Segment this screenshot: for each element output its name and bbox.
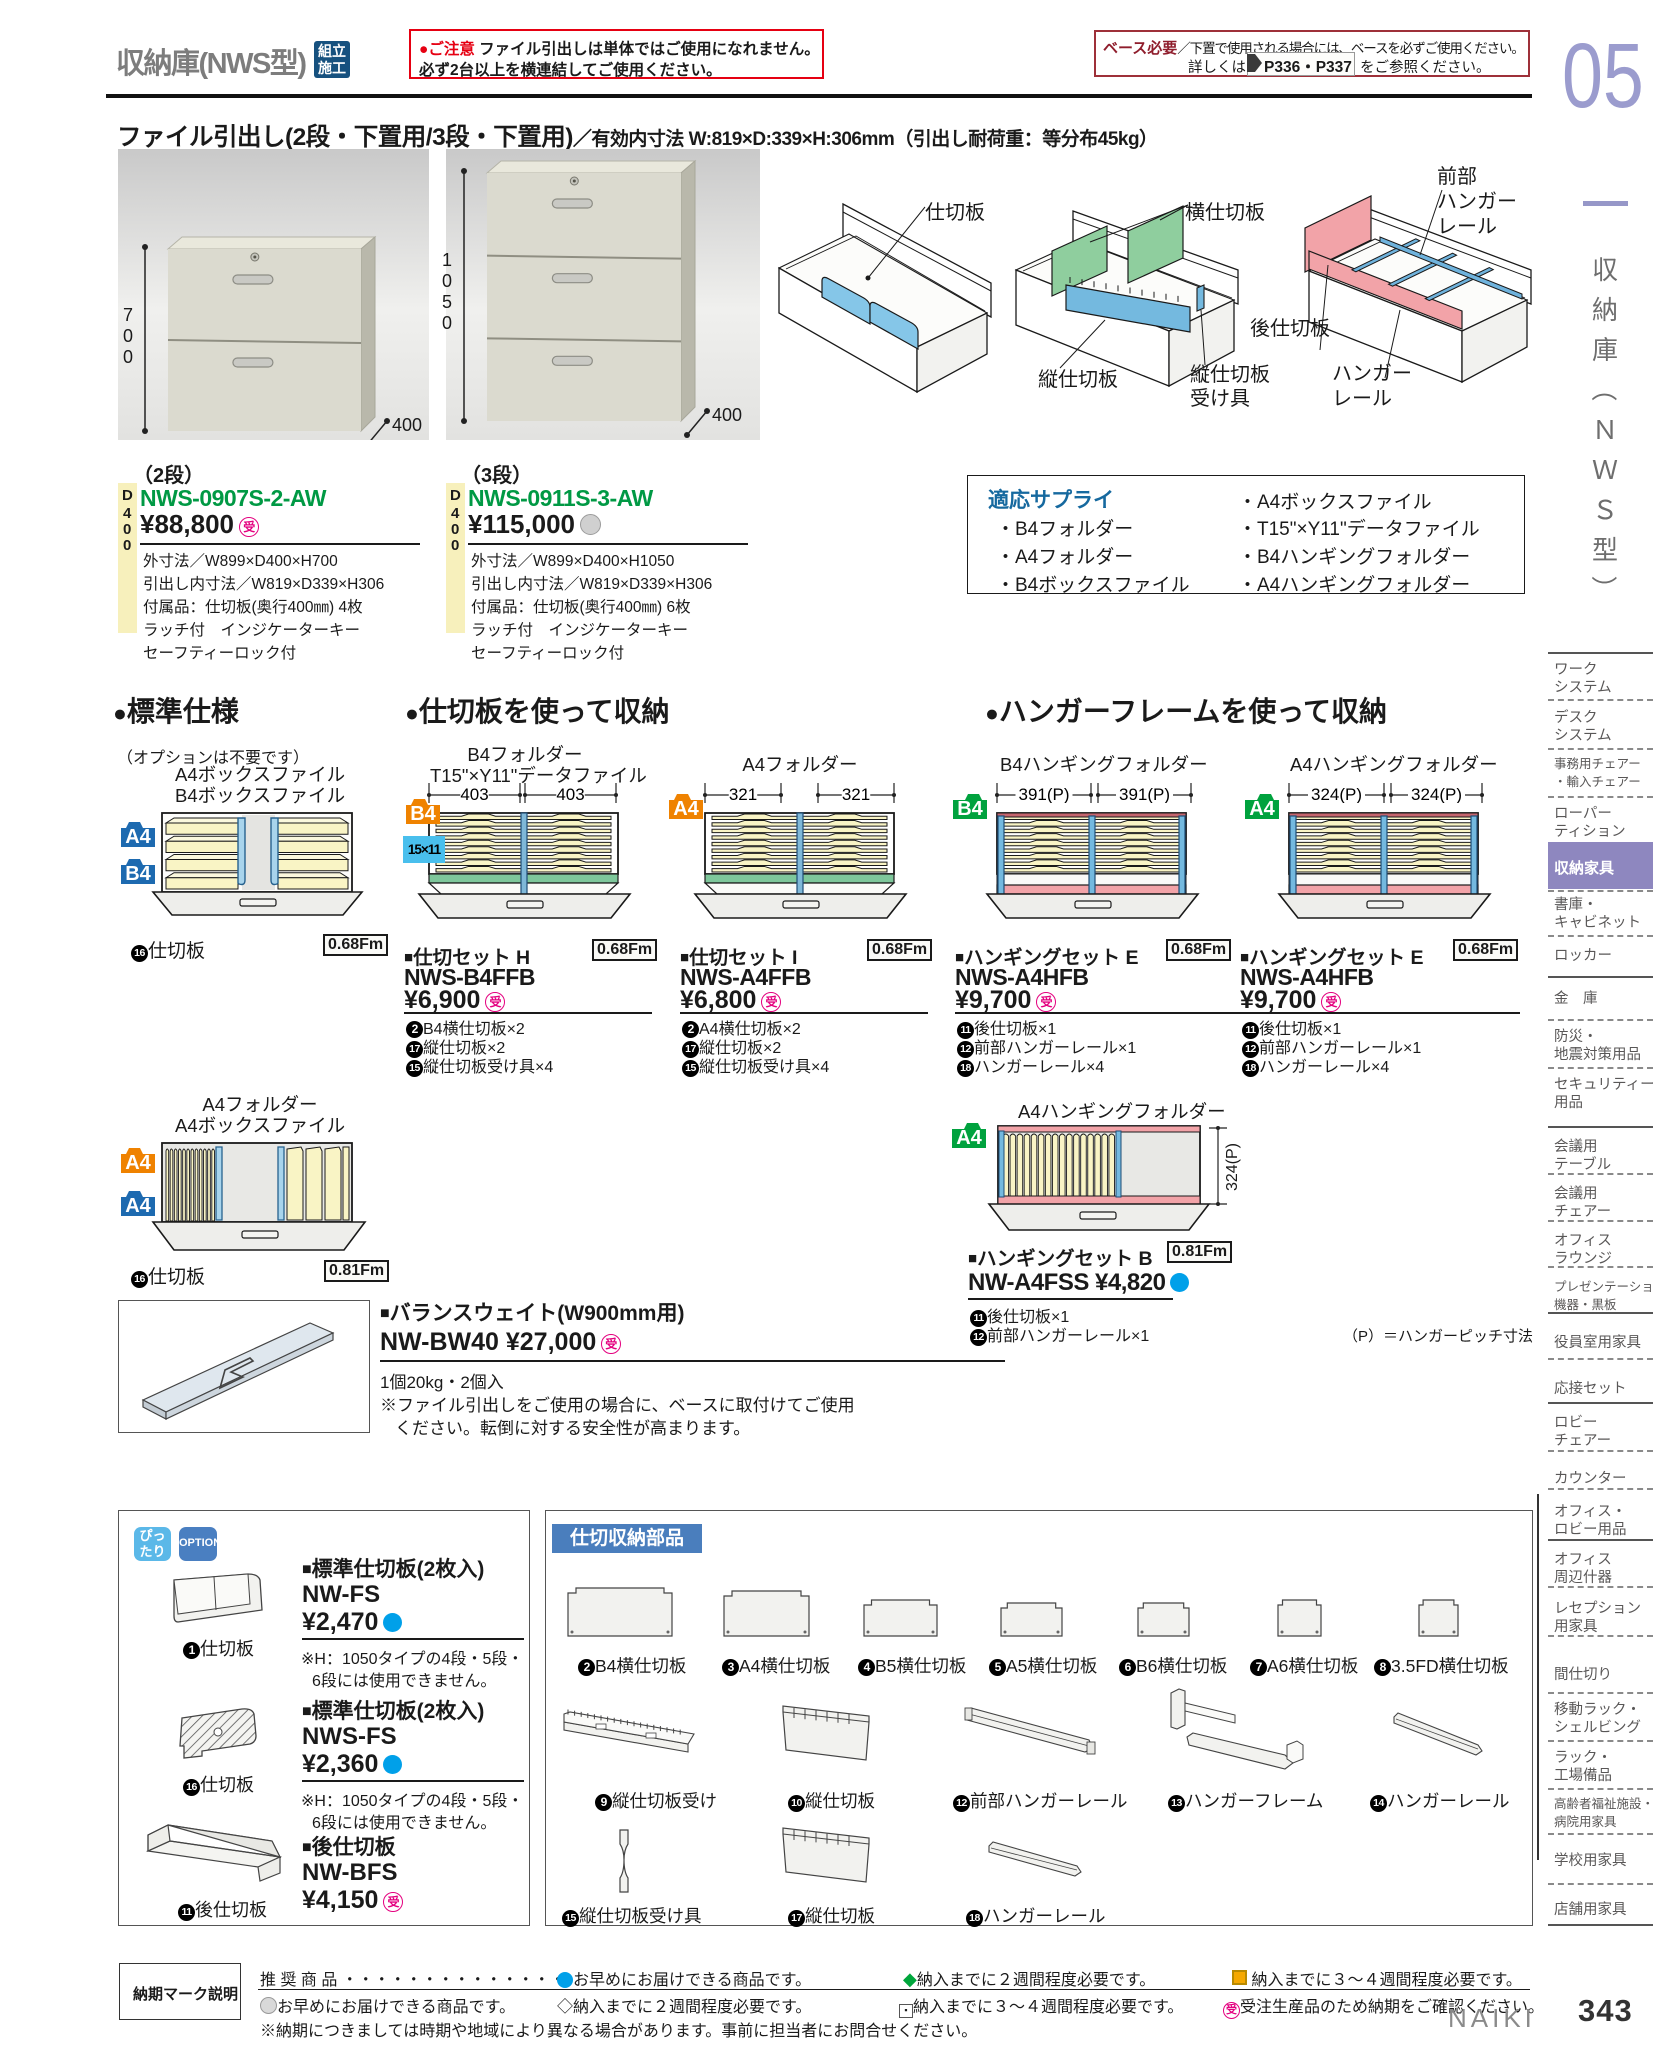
svg-text:B4: B4 — [125, 863, 151, 885]
svg-text:A4: A4 — [125, 1195, 151, 1217]
svg-text:A4: A4 — [125, 1152, 151, 1174]
svg-text:391(P): 391(P) — [1018, 785, 1069, 803]
svg-text:324(P): 324(P) — [1311, 785, 1362, 803]
svg-text:321: 321 — [842, 785, 870, 803]
svg-text:B4: B4 — [957, 798, 983, 820]
svg-text:391(P): 391(P) — [1119, 785, 1170, 803]
svg-text:A4: A4 — [1249, 798, 1275, 820]
svg-text:403: 403 — [556, 785, 584, 803]
svg-text:B4: B4 — [410, 803, 436, 825]
svg-text:A4: A4 — [956, 1127, 982, 1149]
svg-text:403: 403 — [460, 785, 488, 803]
svg-text:321: 321 — [729, 785, 757, 803]
svg-text:A4: A4 — [673, 798, 699, 820]
svg-text:A4: A4 — [125, 826, 151, 848]
svg-text:324(P): 324(P) — [1411, 785, 1462, 803]
